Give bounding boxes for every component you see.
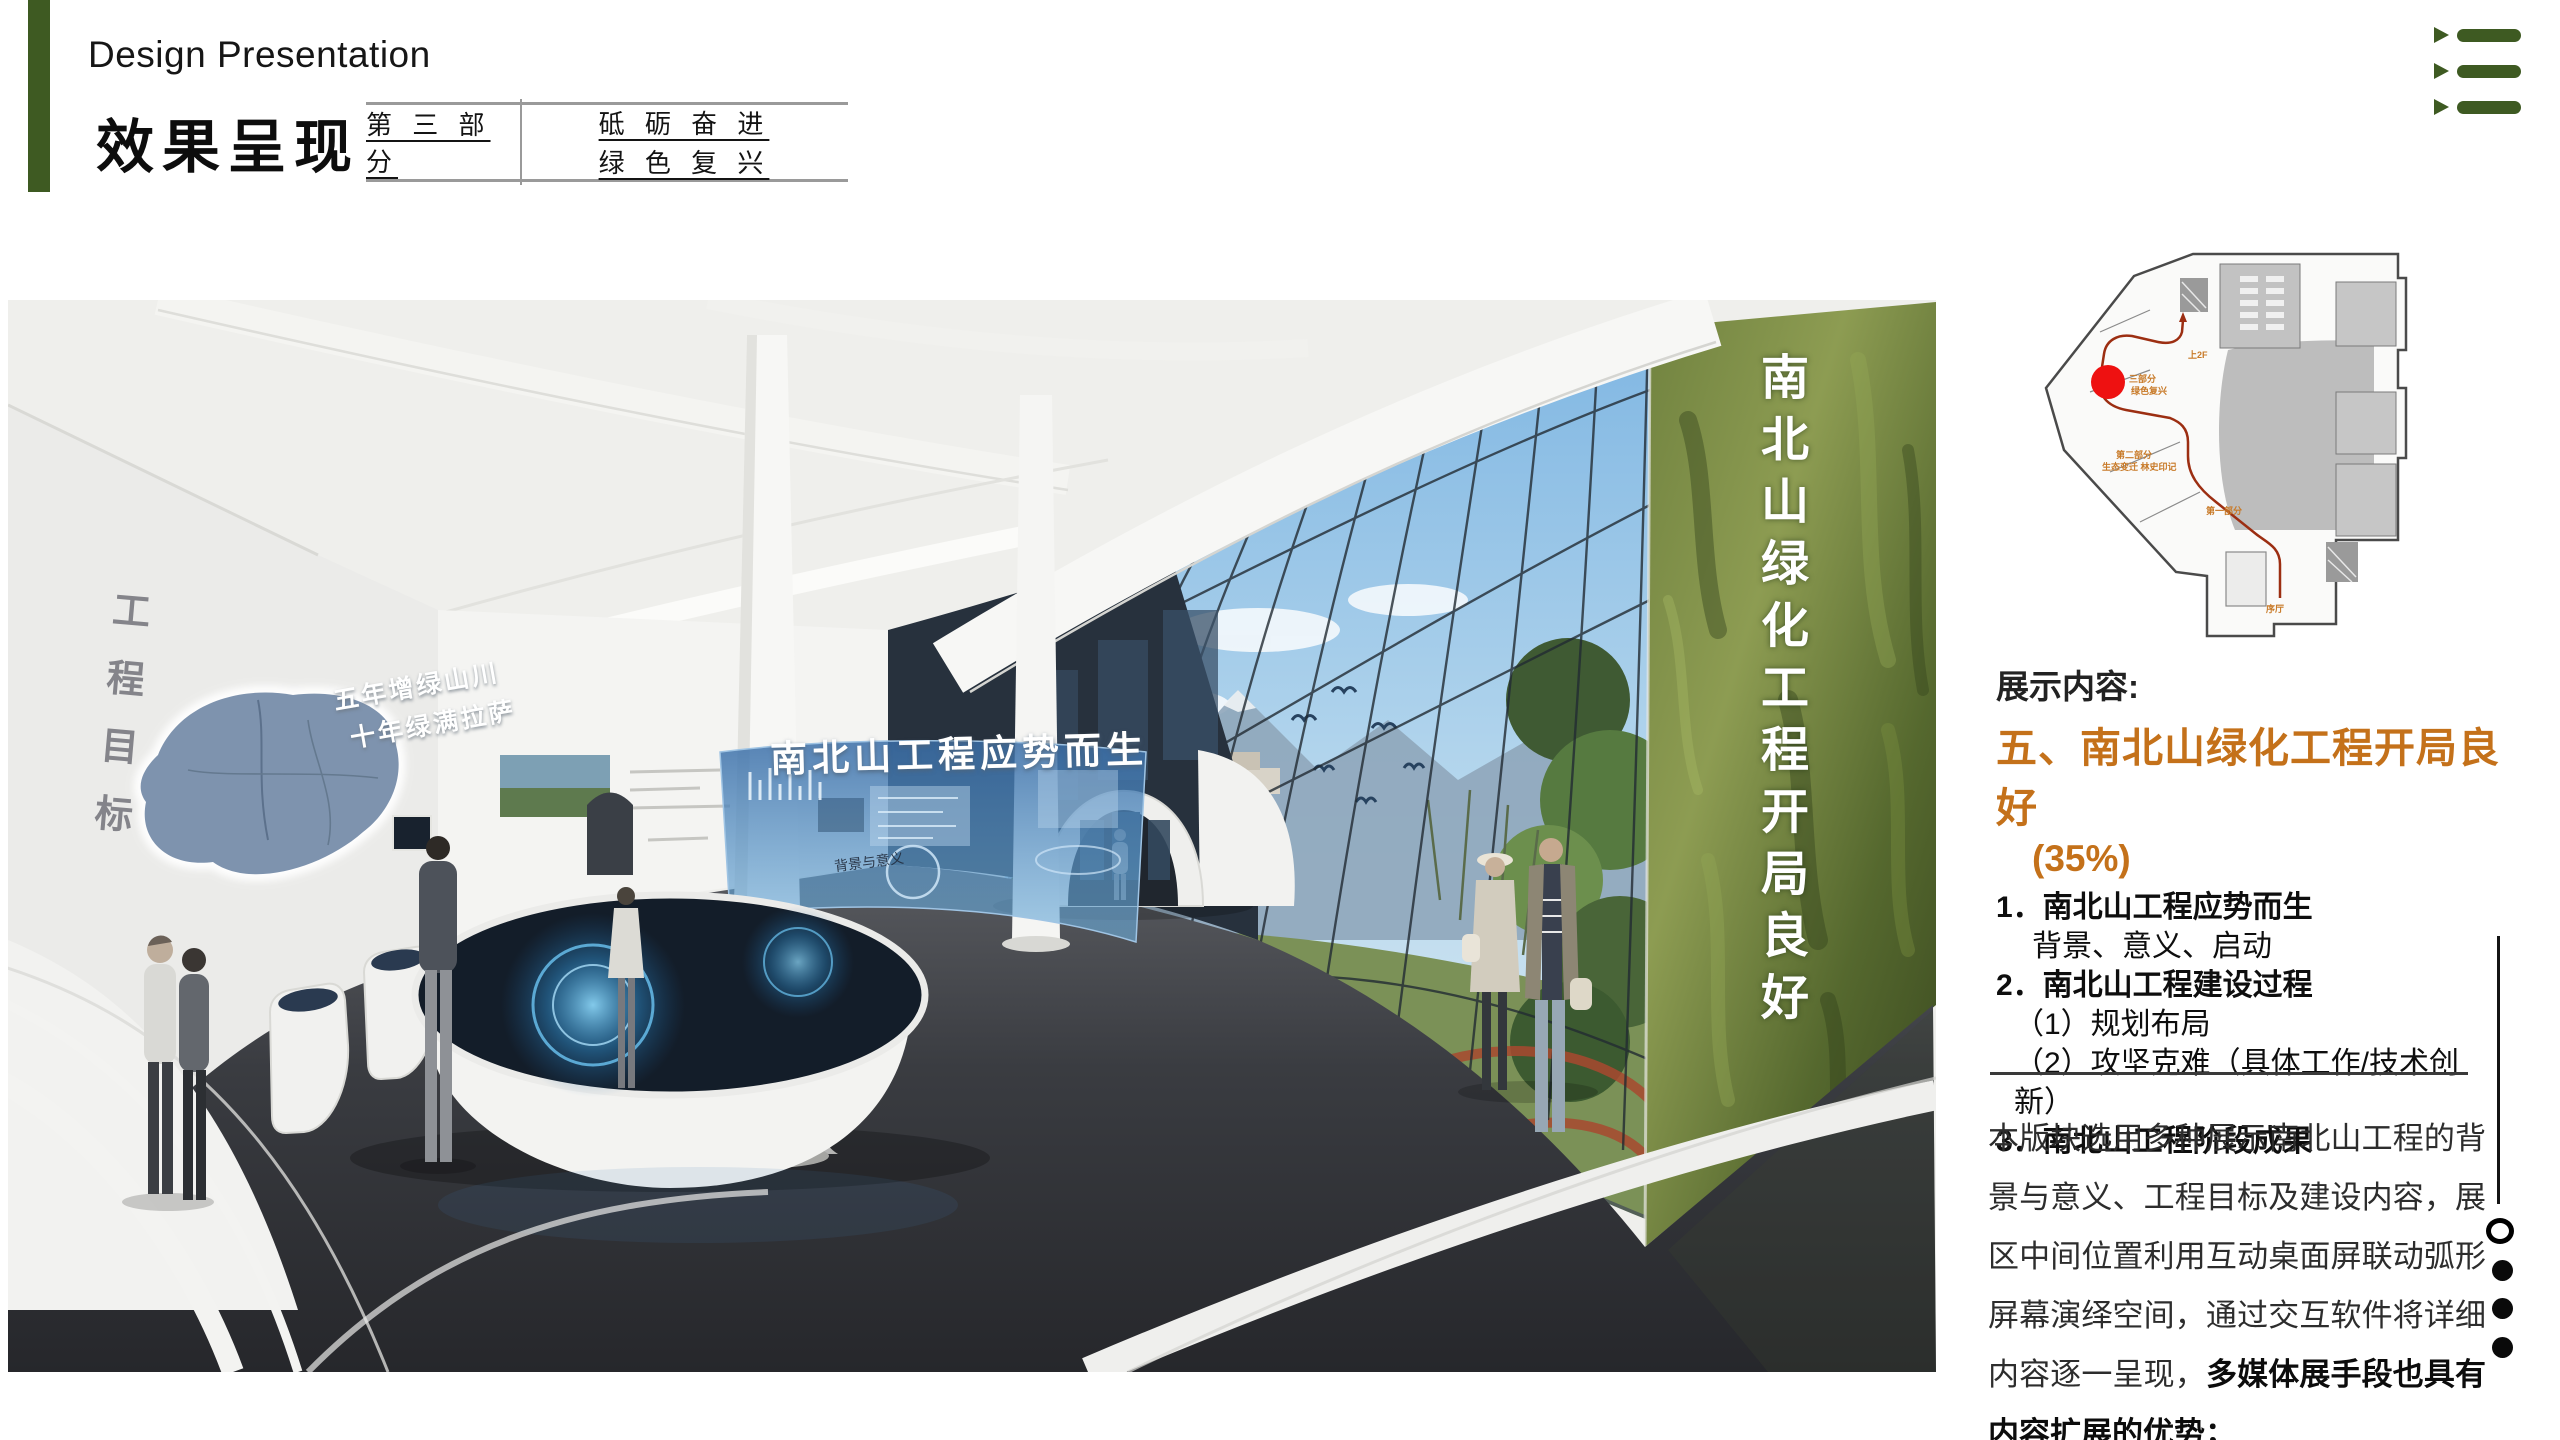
motto-line1: 砥 砺 奋 进	[599, 104, 770, 141]
outline-item: 背景、意义、启动	[1996, 927, 2500, 966]
exhibition-hall-rendering: 南北山绿化工程开局良好 工程目标 五年增绿山川 十年绿满拉萨 南北山工程应势而生…	[8, 300, 1936, 1372]
plan-label-part3-1: 三部分	[2129, 373, 2156, 384]
plan-label-part1: 第一部分	[2206, 505, 2242, 516]
presentation-slide: Design Presentation 效果呈现 第 三 部 分 砥 砺 奋 进…	[0, 0, 2560, 1440]
plan-label-lobby: 序厅	[2266, 603, 2284, 614]
page-dot[interactable]	[2492, 1337, 2513, 1358]
list-icon-row	[2434, 64, 2534, 78]
table-divider	[520, 99, 522, 185]
panel-divider	[1990, 1072, 2468, 1075]
doorway	[587, 793, 633, 876]
section-percent: (35%)	[2032, 838, 2500, 880]
outline-item: （1）规划布局	[1996, 1005, 2500, 1044]
description-text: 本版块选用多种展示南北山工程的背景与意义、工程目标及建设内容，展区中间位置利用互…	[1988, 1121, 2486, 1392]
nav-rule-line	[2497, 936, 2500, 1204]
panel-heading: 展示内容:	[1996, 660, 2500, 708]
page-dot-active[interactable]	[2486, 1218, 2514, 1244]
list-icon-row	[2434, 28, 2534, 42]
page-dot[interactable]	[2492, 1260, 2513, 1281]
slide-title-zh: 效果呈现	[96, 100, 360, 184]
part-motto-table: 第 三 部 分 砥 砺 奋 进 绿 色 复 兴	[366, 102, 848, 182]
page-dot[interactable]	[2492, 1298, 2513, 1319]
content-panel: 展示内容: 五、南北山绿化工程开局良好 (35%) 1．南北山工程应势而生 背景…	[1996, 660, 2500, 1161]
menu-list-icon[interactable]	[2434, 28, 2534, 114]
motto-line2: 绿 色 复 兴	[599, 143, 770, 180]
part-label: 第 三 部 分	[366, 105, 520, 179]
outline-item: 2．南北山工程建设过程	[1996, 966, 2500, 1005]
list-bar-icon	[2457, 29, 2521, 42]
plan-label-up: 上2F	[2188, 349, 2208, 360]
plan-label-part2-1: 第二部分	[2116, 449, 2152, 460]
triangle-bullet-icon	[2434, 99, 2449, 115]
wall-screen	[393, 816, 431, 850]
plan-label-part2-2: 生态变迁 林史印记	[2102, 461, 2177, 472]
slide-title-en: Design Presentation	[88, 34, 431, 76]
current-location-marker	[2091, 365, 2125, 399]
list-bar-icon	[2457, 65, 2521, 78]
green-wall-vertical-title: 南北山绿化工程开局良好	[1744, 352, 1814, 1034]
outline-item: 1．南北山工程应势而生	[1996, 888, 2500, 927]
section-title: 五、南北山绿化工程开局良好	[1996, 714, 2500, 834]
hall-scene	[8, 300, 1936, 1372]
plan-label-part3-2: 绿色复兴	[2131, 385, 2167, 396]
accent-bar	[28, 0, 50, 192]
description-paragraph: 本版块选用多种展示南北山工程的背景与意义、工程目标及建设内容，展区中间位置利用互…	[1988, 1109, 2486, 1440]
screen-title: 南北山工程应势而生	[769, 719, 1148, 783]
list-icon-row	[2434, 100, 2534, 114]
floor-plan: 上2F 三部分 绿色复兴 第二部分 生态变迁 林史印记 第一部分 序厅	[2030, 242, 2450, 642]
triangle-bullet-icon	[2434, 27, 2449, 43]
triangle-bullet-icon	[2434, 63, 2449, 79]
list-bar-icon	[2457, 101, 2521, 114]
